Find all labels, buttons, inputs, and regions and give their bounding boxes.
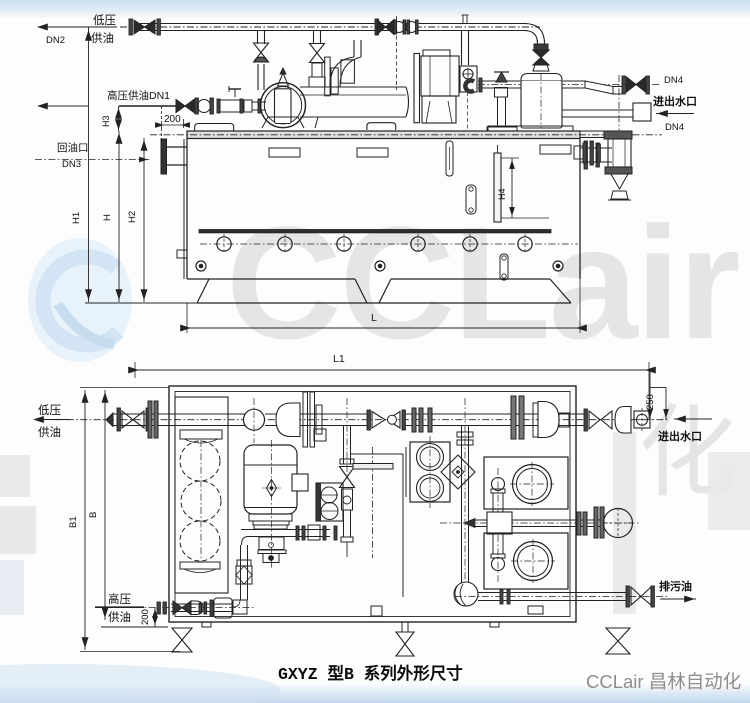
svg-text:低压: 低压 bbox=[38, 404, 61, 417]
svg-text:DN4: DN4 bbox=[664, 75, 683, 86]
svg-text:低压: 低压 bbox=[93, 14, 116, 27]
svg-text:DN4: DN4 bbox=[665, 122, 684, 133]
svg-text:H3: H3 bbox=[101, 115, 111, 127]
svg-text:L1: L1 bbox=[333, 353, 345, 365]
svg-text:H1: H1 bbox=[71, 212, 82, 224]
svg-text:H2: H2 bbox=[127, 211, 138, 223]
svg-text:供油: 供油 bbox=[108, 610, 131, 624]
svg-text:进出水口: 进出水口 bbox=[653, 94, 697, 108]
svg-text:H: H bbox=[102, 214, 113, 221]
svg-text:200: 200 bbox=[140, 609, 151, 625]
svg-text:B: B bbox=[88, 512, 99, 518]
svg-text:DN3: DN3 bbox=[62, 159, 81, 170]
svg-text:250: 250 bbox=[645, 394, 656, 410]
svg-text:高压: 高压 bbox=[108, 592, 131, 606]
svg-text:CCLair 昌林自动化: CCLair 昌林自动化 bbox=[586, 671, 741, 692]
svg-text:进出水口: 进出水口 bbox=[658, 429, 702, 443]
svg-text:200: 200 bbox=[164, 114, 181, 125]
svg-text:供油: 供油 bbox=[38, 425, 61, 439]
svg-text:CCLair: CCLair bbox=[226, 193, 739, 372]
svg-text:B1: B1 bbox=[68, 516, 79, 528]
svg-text:供油: 供油 bbox=[91, 31, 114, 45]
svg-text:回油口: 回油口 bbox=[57, 141, 89, 154]
svg-text:H4: H4 bbox=[497, 188, 507, 200]
svg-text:L: L bbox=[371, 312, 377, 324]
svg-text:DN2: DN2 bbox=[46, 35, 65, 46]
svg-text:GXYZ 型B 系列外形尺寸: GXYZ 型B 系列外形尺寸 bbox=[278, 663, 463, 684]
svg-text:排污油: 排污油 bbox=[659, 579, 692, 593]
svg-text:高压供油DN1: 高压供油DN1 bbox=[107, 89, 170, 102]
